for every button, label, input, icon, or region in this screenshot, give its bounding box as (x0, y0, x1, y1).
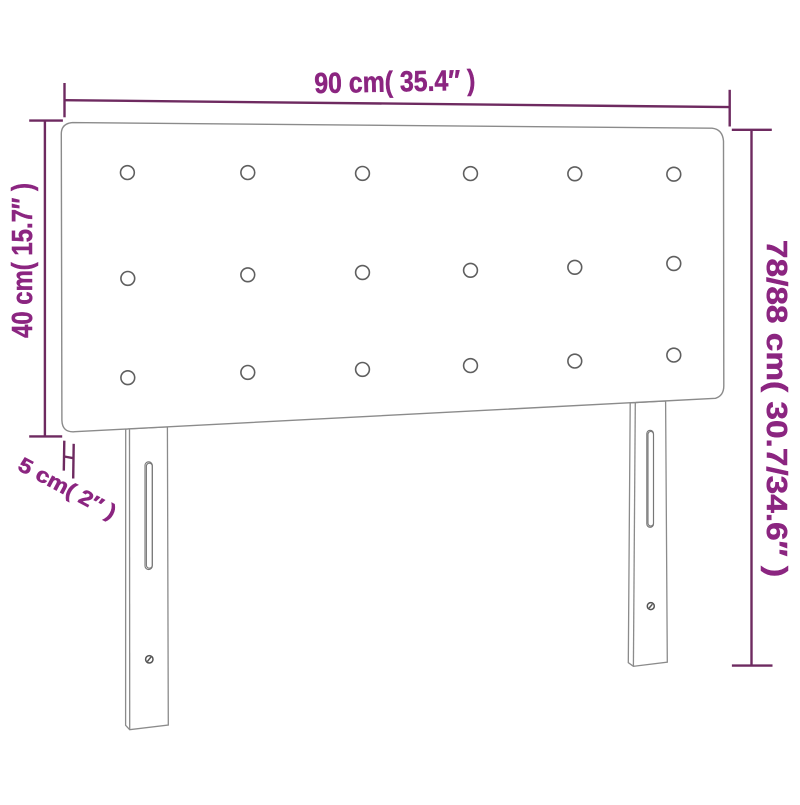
svg-text:90 cm( 35.4″ ): 90 cm( 35.4″ ) (314, 64, 476, 100)
svg-text:40 cm( 15.7″ ): 40 cm( 15.7″ ) (6, 183, 39, 338)
svg-text:78/88 cm( 30.7/34.6″ ): 78/88 cm( 30.7/34.6″ ) (761, 240, 793, 577)
